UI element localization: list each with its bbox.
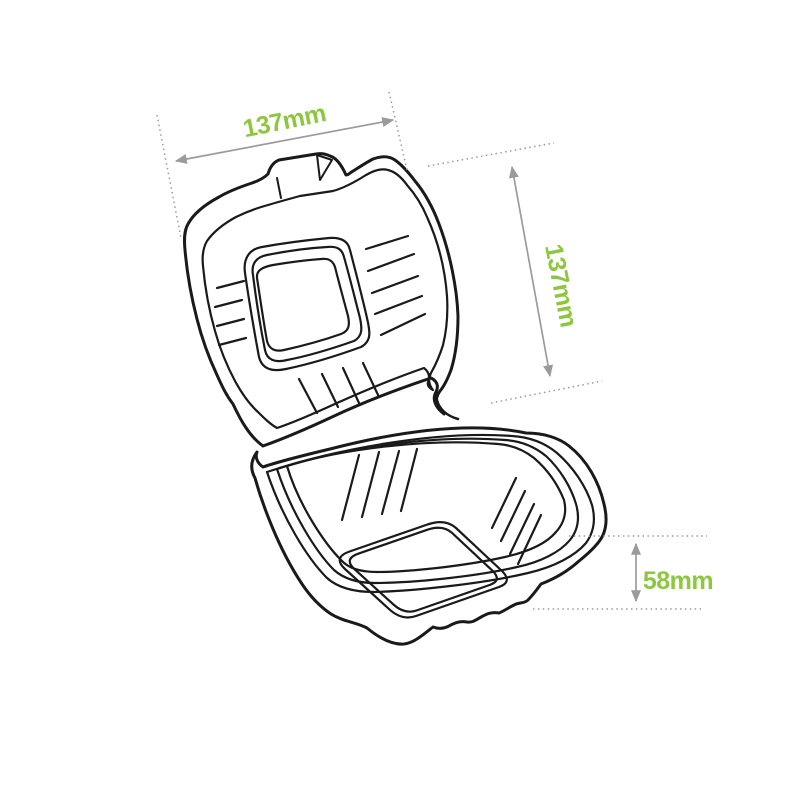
base-vent-lines-left [342, 449, 417, 520]
height-dimension-label: 58mm [643, 567, 713, 595]
lid-drawing [184, 154, 458, 446]
lid-inner-line [203, 169, 448, 428]
lid-vent-lines-right [366, 236, 425, 335]
lid-tab-tick [277, 178, 281, 198]
product-dimension-page: 137mm 137mm 58mm [0, 0, 800, 800]
lid-vent-lines-left [215, 281, 246, 345]
depth-extension-line-bottom [491, 381, 602, 403]
base-drawing [252, 428, 606, 644]
lid-panel-outer [245, 238, 370, 370]
width-dimension-label: 137mm [241, 99, 329, 143]
dimension-annotations [157, 92, 707, 609]
product-dimension-diagram: 137mm 137mm 58mm [0, 0, 800, 800]
base-rim-line [277, 439, 578, 583]
lid-tab-fold-triangle [317, 155, 332, 180]
depth-extension-line-top [428, 143, 554, 166]
lid-panel-inner [257, 259, 349, 351]
depth-dimension-label: 137mm [539, 242, 582, 329]
base-vent-lines-right [492, 478, 541, 564]
width-extension-line-left [157, 115, 181, 238]
lid-vent-lines-bottom [299, 363, 379, 413]
clamshell-line-art [184, 154, 606, 644]
